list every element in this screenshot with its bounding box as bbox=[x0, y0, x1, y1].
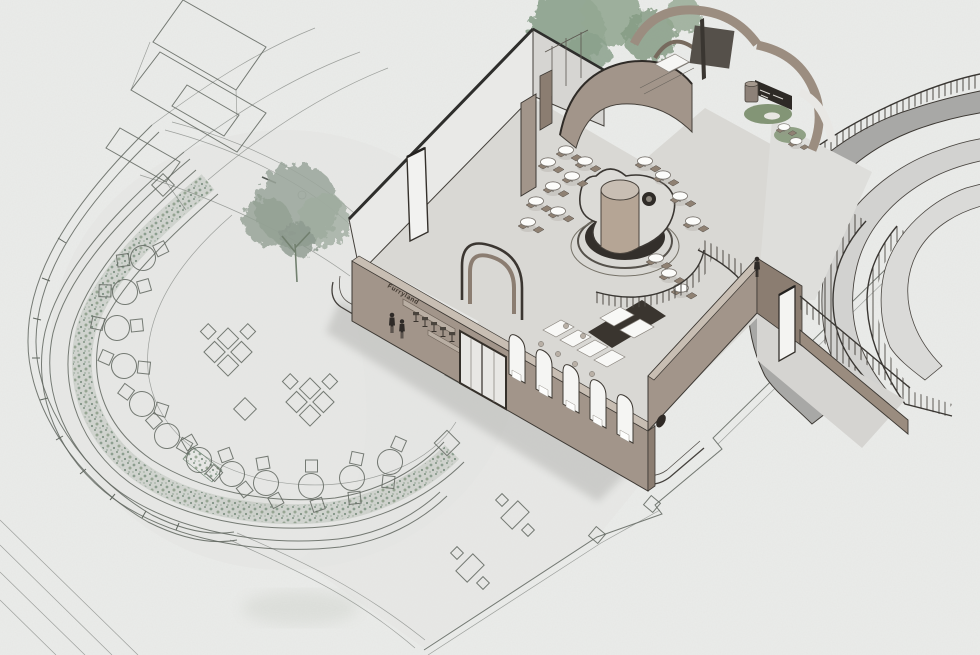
white-pillar bbox=[407, 148, 428, 241]
partition-fin bbox=[521, 94, 536, 196]
white-obelisk bbox=[779, 286, 795, 361]
ground-shadow-smudge bbox=[242, 591, 358, 625]
cylinder-top bbox=[601, 180, 639, 200]
kitchen-equipment bbox=[690, 25, 735, 68]
ground-shadow-smudge bbox=[225, 495, 285, 515]
axonometric-cafe-illustration: Furryland bbox=[0, 0, 980, 655]
rug bbox=[764, 112, 780, 119]
facade-end-cap bbox=[648, 426, 655, 491]
illustration-canvas: Furryland bbox=[0, 0, 980, 655]
partition-fin bbox=[540, 70, 552, 130]
